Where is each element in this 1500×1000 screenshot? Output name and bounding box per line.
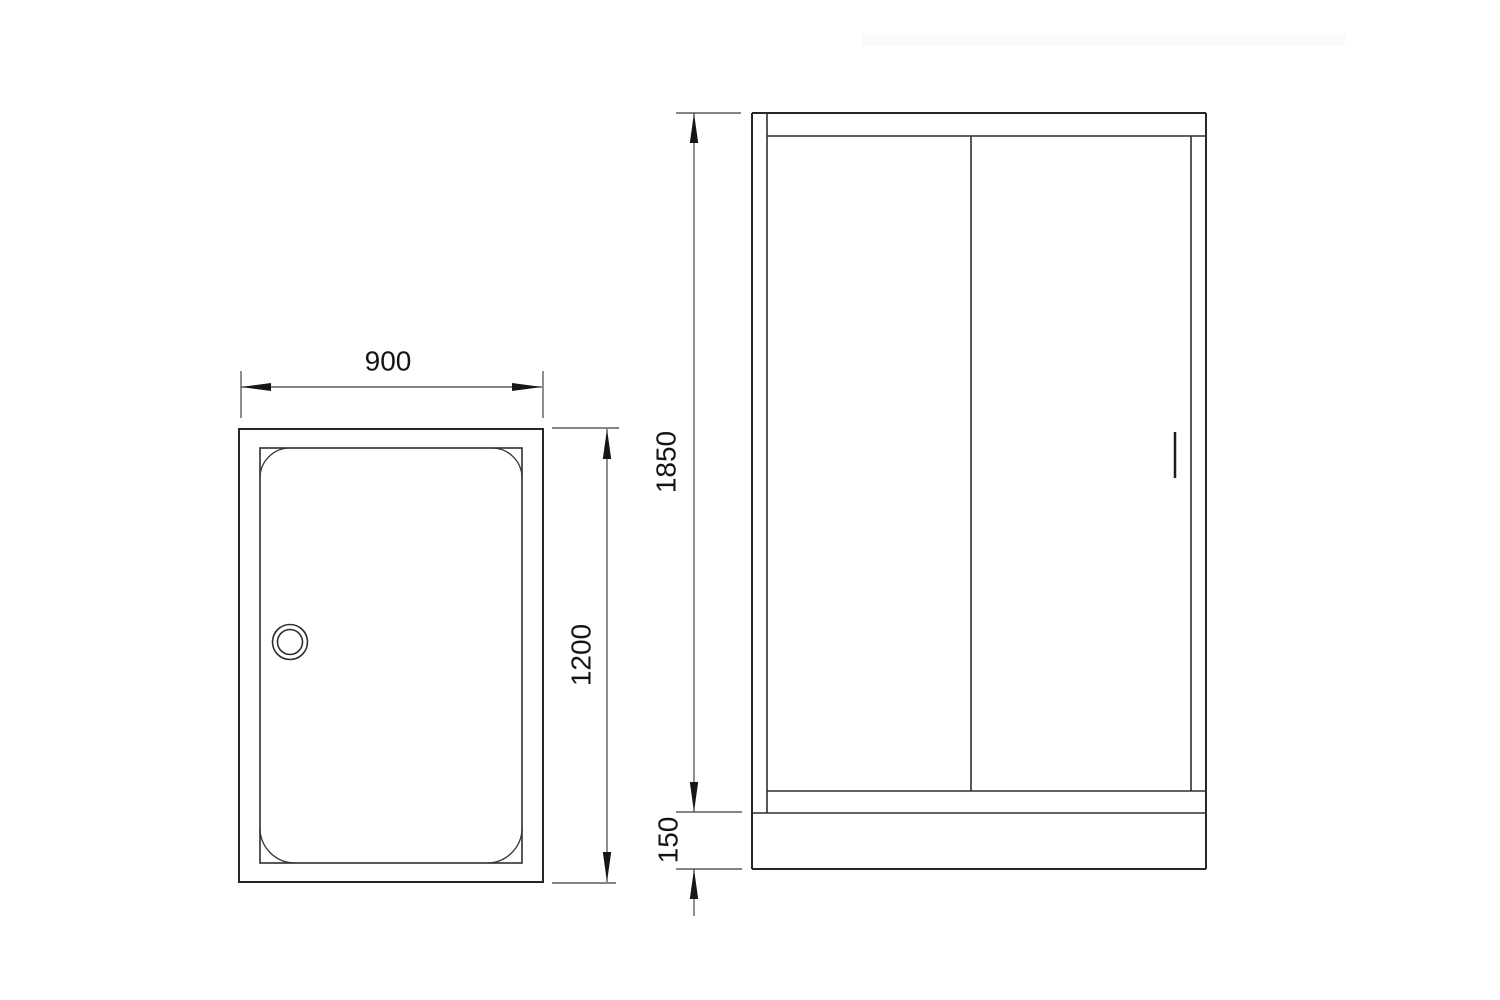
dimension-label-150: 150 (653, 817, 684, 864)
tray-inner-rim (260, 448, 522, 863)
tray-floor-corner-arc-bottom-left (260, 828, 295, 863)
tray-floor-corner-arc-bottom-right (487, 828, 522, 863)
dimension-tray-depth: 1200 (552, 428, 619, 883)
arrowhead-up (603, 429, 611, 459)
drawing-canvas: 900 1200 1850 150 (0, 0, 1500, 1000)
technical-drawing: 900 1200 1850 150 (0, 0, 1500, 1000)
top-view (239, 429, 543, 882)
arrowhead-down (690, 782, 698, 812)
dimension-door-height: 1850 (651, 113, 742, 812)
front-view (752, 113, 1206, 869)
arrowhead-up (690, 869, 698, 899)
dimension-label-1200: 1200 (566, 624, 597, 686)
arrowhead-left (241, 383, 271, 391)
tray-floor-corner-arc-top-right (492, 448, 522, 478)
arrowhead-down (603, 852, 611, 882)
dimension-label-900: 900 (365, 346, 412, 377)
arrowhead-right (512, 383, 542, 391)
arrowhead-up (690, 113, 698, 143)
watermark-band (862, 33, 1345, 46)
dimension-label-1850: 1850 (651, 431, 682, 493)
tray-floor-corner-arc-top-left (260, 448, 290, 478)
dimension-base-height: 150 (653, 812, 743, 916)
tray-outer-rim (239, 429, 543, 882)
dimension-tray-width: 900 (241, 346, 543, 419)
drain-inner-circle (278, 630, 303, 655)
